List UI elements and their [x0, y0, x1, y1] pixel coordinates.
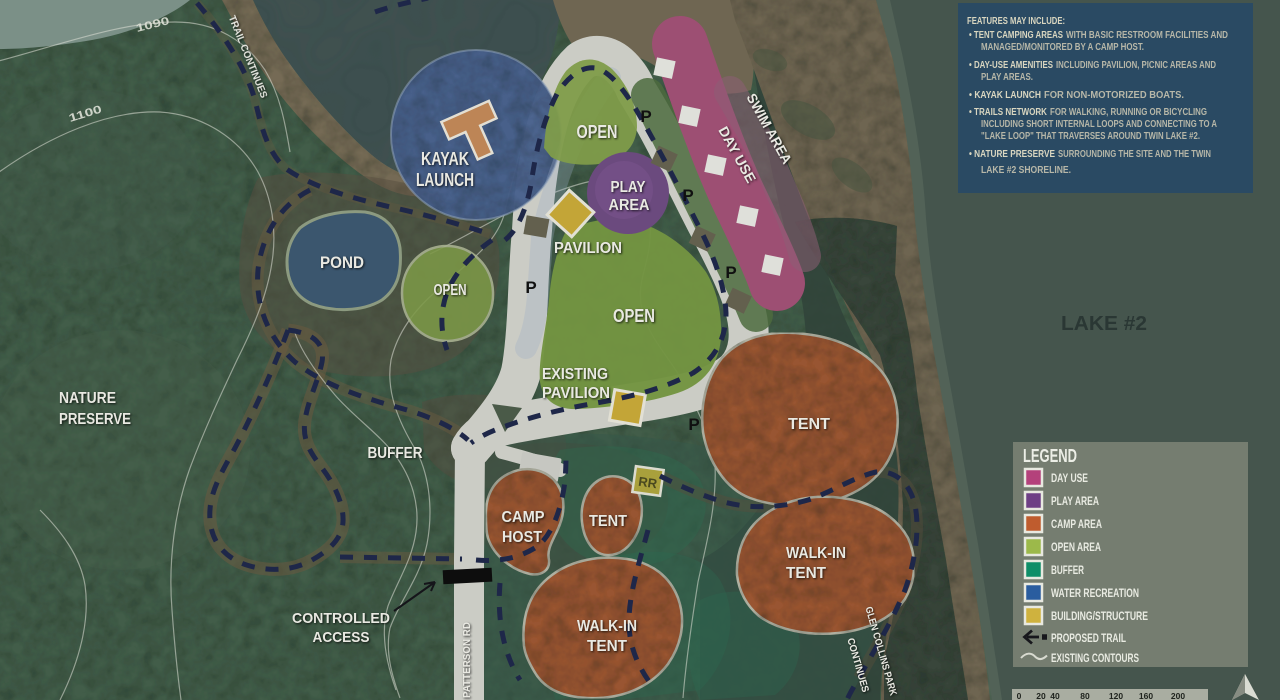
svg-text:TENT: TENT: [587, 638, 627, 655]
svg-text:• TRAILS NETWORK: • TRAILS NETWORK: [969, 106, 1047, 118]
svg-text:INCLUDING PAVILION, PICNIC ARE: INCLUDING PAVILION, PICNIC AREAS AND: [1056, 59, 1216, 71]
svg-text:80: 80: [1080, 691, 1090, 700]
svg-text:PLAY AREAS.: PLAY AREAS.: [981, 71, 1033, 83]
svg-text:120: 120: [1109, 691, 1123, 700]
svg-text:AREA: AREA: [609, 197, 650, 214]
svg-text:OPEN: OPEN: [577, 122, 618, 142]
svg-text:MANAGED/MONITORED BY A CAMP HO: MANAGED/MONITORED BY A CAMP HOST.: [981, 41, 1144, 53]
svg-text:WALK-IN: WALK-IN: [577, 618, 637, 635]
svg-text:KAYAK: KAYAK: [421, 149, 469, 169]
svg-text:PRESERVE: PRESERVE: [59, 411, 131, 428]
svg-text:TENT: TENT: [788, 416, 830, 433]
svg-text:P: P: [688, 415, 699, 434]
svg-text:PAVILION: PAVILION: [554, 240, 622, 257]
svg-text:BUFFER: BUFFER: [1051, 565, 1084, 577]
svg-text:WITH BASIC RESTROOM FACILITIES: WITH BASIC RESTROOM FACILITIES AND: [1066, 29, 1228, 41]
svg-text:EXISTING: EXISTING: [542, 366, 608, 383]
svg-text:EXISTING CONTOURS: EXISTING CONTOURS: [1051, 653, 1139, 665]
svg-text:0: 0: [1017, 691, 1022, 700]
svg-text:OPEN AREA: OPEN AREA: [1051, 542, 1101, 554]
svg-text:CAMP: CAMP: [502, 509, 545, 526]
svg-text:PAVILION: PAVILION: [542, 385, 610, 402]
svg-text:CAMP AREA: CAMP AREA: [1051, 519, 1102, 531]
svg-text:"LAKE LOOP" THAT TRAVERSES ARO: "LAKE LOOP" THAT TRAVERSES AROUND TWIN L…: [981, 130, 1200, 142]
svg-text:• NATURE PRESERVE: • NATURE PRESERVE: [969, 148, 1055, 160]
svg-text:LEGEND: LEGEND: [1023, 446, 1077, 466]
svg-text:INCLUDING SHORT INTERNAL LOOPS: INCLUDING SHORT INTERNAL LOOPS AND CONNE…: [981, 118, 1217, 130]
svg-text:FOR WALKING, RUNNING OR BICYCL: FOR WALKING, RUNNING OR BICYCLING: [1050, 106, 1207, 118]
svg-text:FOR NON-MOTORIZED BOATS.: FOR NON-MOTORIZED BOATS.: [1044, 89, 1184, 101]
svg-text:LAKE #2: LAKE #2: [1061, 313, 1147, 335]
svg-text:POND: POND: [320, 253, 364, 272]
svg-text:CONTROLLED: CONTROLLED: [292, 610, 390, 627]
svg-text:P: P: [640, 107, 651, 126]
svg-text:P: P: [525, 278, 536, 297]
svg-text:• TENT CAMPING AREAS: • TENT CAMPING AREAS: [969, 29, 1063, 41]
svg-text:OPEN: OPEN: [434, 282, 467, 299]
svg-text:SURROUNDING THE SITE AND THE T: SURROUNDING THE SITE AND THE TWIN: [1058, 148, 1211, 160]
svg-text:P: P: [682, 186, 693, 205]
svg-text:• KAYAK LAUNCH: • KAYAK LAUNCH: [969, 89, 1041, 101]
svg-text:NATURE: NATURE: [59, 390, 116, 407]
svg-text:200: 200: [1171, 691, 1185, 700]
svg-text:LAKE #2 SHORELINE.: LAKE #2 SHORELINE.: [981, 164, 1071, 176]
svg-text:160: 160: [1139, 691, 1153, 700]
svg-text:BUFFER: BUFFER: [368, 445, 423, 462]
svg-text:• DAY-USE AMENITIES: • DAY-USE AMENITIES: [969, 59, 1053, 71]
svg-text:PROPOSED TRAIL: PROPOSED TRAIL: [1051, 633, 1126, 645]
svg-text:PATTERSON RD: PATTERSON RD: [462, 622, 473, 698]
svg-text:WATER RECREATION: WATER RECREATION: [1051, 588, 1139, 600]
svg-text:20: 20: [1036, 691, 1046, 700]
svg-text:PLAY AREA: PLAY AREA: [1051, 496, 1099, 508]
svg-text:BUILDING/STRUCTURE: BUILDING/STRUCTURE: [1051, 611, 1148, 623]
svg-text:40: 40: [1050, 691, 1060, 700]
svg-text:DAY USE: DAY USE: [1051, 473, 1088, 485]
svg-text:TENT: TENT: [786, 565, 826, 582]
svg-text:OPEN: OPEN: [613, 306, 655, 326]
svg-text:WALK-IN: WALK-IN: [786, 545, 846, 562]
svg-text:P: P: [725, 263, 736, 282]
svg-text:PLAY: PLAY: [611, 179, 646, 196]
svg-text:ACCESS: ACCESS: [313, 629, 370, 646]
svg-text:TENT: TENT: [589, 513, 627, 530]
svg-text:HOST: HOST: [502, 529, 542, 546]
svg-text:RR: RR: [637, 474, 658, 492]
svg-text:FEATURES MAY INCLUDE:: FEATURES MAY INCLUDE:: [967, 15, 1065, 27]
svg-text:LAUNCH: LAUNCH: [416, 170, 474, 190]
